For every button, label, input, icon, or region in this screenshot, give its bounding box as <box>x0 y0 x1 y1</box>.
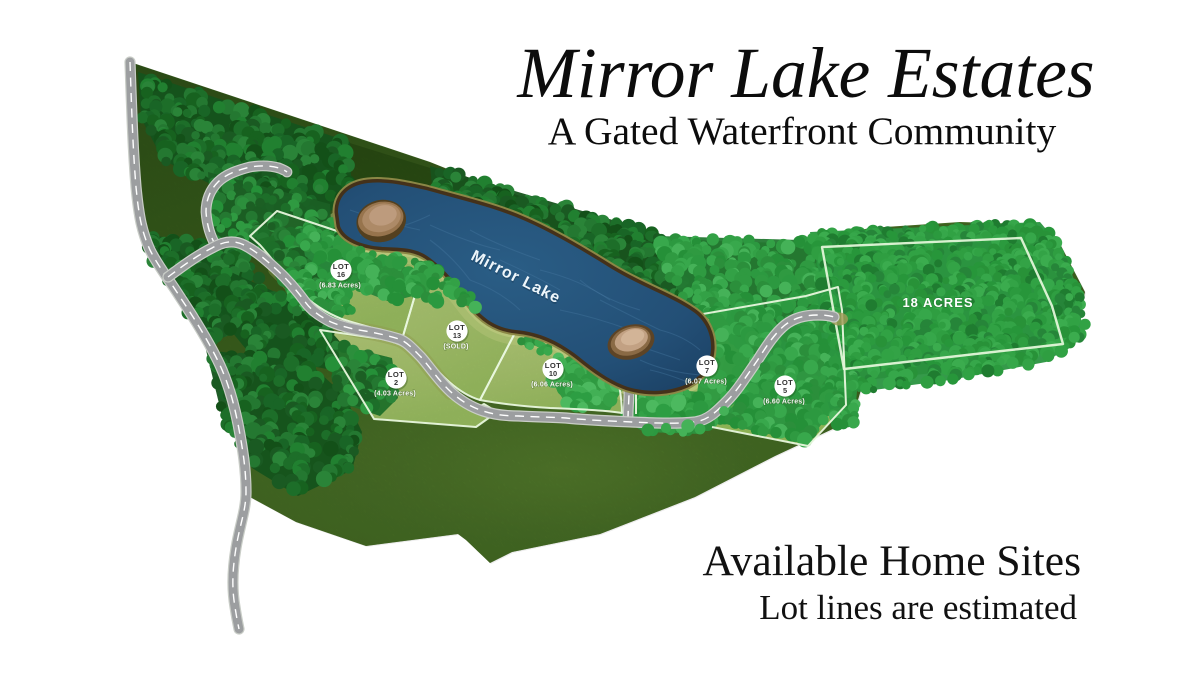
svg-text:A Gated Waterfront Community: A Gated Waterfront Community <box>548 109 1057 153</box>
svg-text:(SOLD): (SOLD) <box>443 344 468 351</box>
svg-text:(4.03 Acres): (4.03 Acres) <box>374 391 416 398</box>
svg-text:5: 5 <box>783 386 787 395</box>
svg-text:Available Home Sites: Available Home Sites <box>702 537 1081 585</box>
svg-text:(6.06 Acres): (6.06 Acres) <box>531 382 573 389</box>
svg-text:Mirror Lake Estates: Mirror Lake Estates <box>516 34 1094 113</box>
svg-text:18 ACRES: 18 ACRES <box>902 295 973 310</box>
svg-text:13: 13 <box>453 331 461 340</box>
svg-text:(6.83 Acres): (6.83 Acres) <box>319 283 361 290</box>
svg-text:(6.60 Acres): (6.60 Acres) <box>763 399 805 406</box>
svg-text:2: 2 <box>394 378 398 387</box>
svg-text:10: 10 <box>549 369 557 378</box>
svg-text:(6.07 Acres): (6.07 Acres) <box>685 379 727 386</box>
svg-text:7: 7 <box>705 366 709 375</box>
svg-text:Lot lines are estimated: Lot lines are estimated <box>759 588 1077 627</box>
svg-text:16: 16 <box>337 270 345 279</box>
